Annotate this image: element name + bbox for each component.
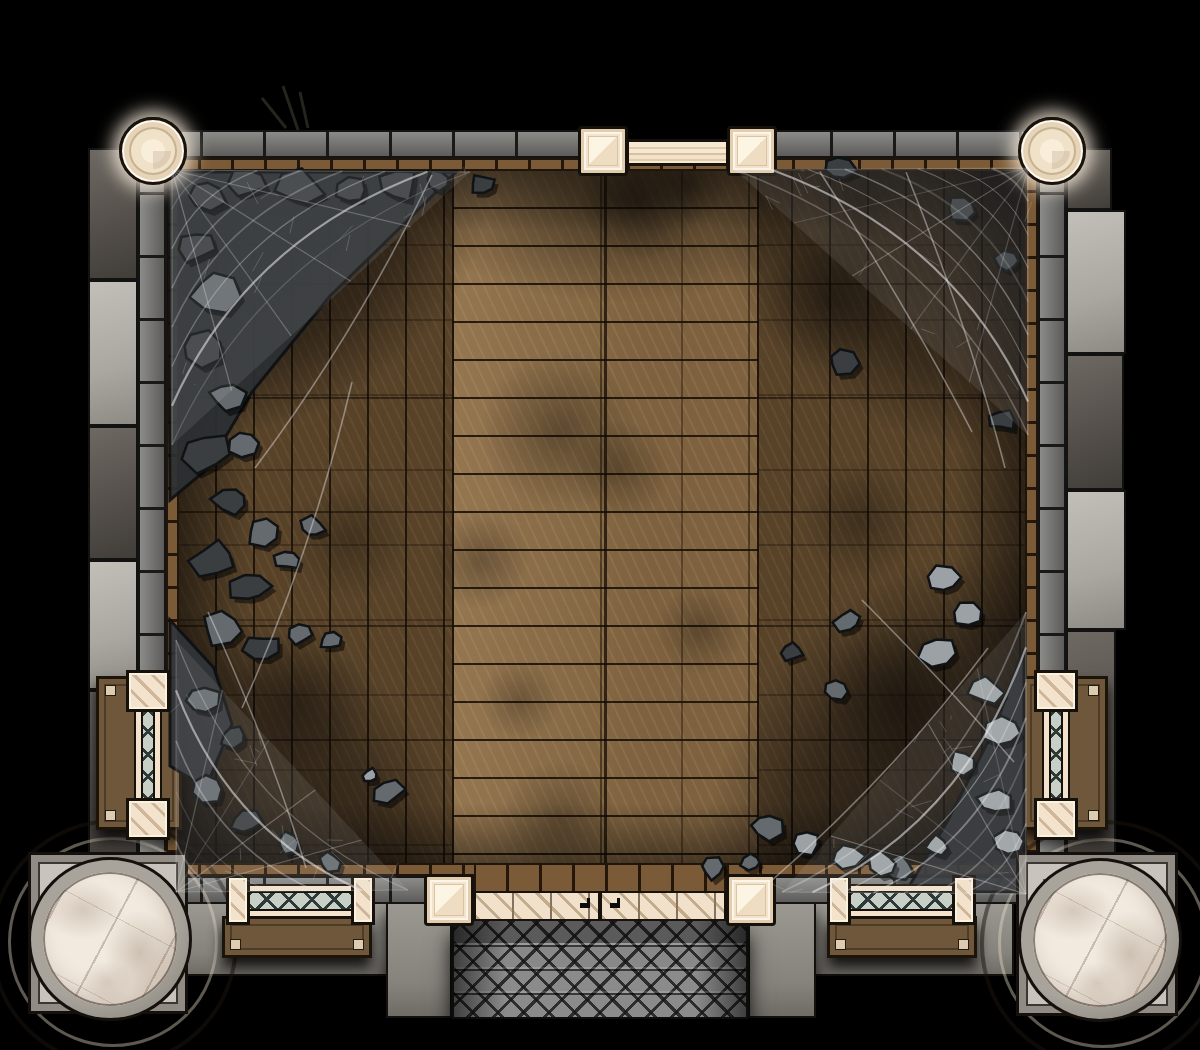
twig	[262, 98, 286, 128]
railing-left-wall	[134, 710, 162, 800]
twig	[283, 86, 298, 130]
railing-bottom-right	[849, 884, 954, 918]
door-handle	[580, 903, 590, 908]
floor-center-aisle	[452, 171, 759, 863]
marble-tower-bottom-right	[1033, 873, 1167, 1007]
bench-peg	[105, 685, 116, 696]
railing-post	[827, 875, 851, 925]
buttress-block	[88, 426, 138, 560]
railing-post	[1034, 670, 1078, 712]
railing-post	[126, 798, 170, 840]
bench-panel	[230, 924, 364, 950]
entrance-pillar-right	[726, 874, 776, 926]
bench-peg	[353, 939, 364, 950]
top-door-pillar-left	[578, 126, 628, 176]
bench-peg	[105, 810, 116, 821]
buttress-block	[1066, 354, 1124, 490]
railing-bottom-left	[248, 884, 353, 918]
round-tower-top-left	[119, 117, 187, 185]
floor-parquet-right	[755, 171, 1025, 863]
railing-post	[1034, 798, 1078, 840]
marble-tower-bottom-left	[43, 872, 177, 1006]
bottom-doorway-trim	[474, 863, 726, 893]
railing-post	[226, 875, 250, 925]
floor-parquet-left	[179, 171, 452, 863]
entrance-pillar-left	[424, 874, 474, 926]
entrance-stairs	[452, 919, 748, 1019]
buttress-block	[1066, 490, 1126, 630]
bench-peg	[230, 939, 241, 950]
aisle-seam	[604, 171, 607, 863]
twig	[300, 92, 308, 128]
railing-post	[351, 875, 375, 925]
buttress-block	[88, 280, 138, 426]
bench-peg	[835, 939, 846, 950]
railing-post	[126, 670, 170, 712]
battle-map-canvas	[0, 0, 1200, 1050]
wooden-floor	[179, 171, 1025, 863]
bench-peg	[958, 939, 969, 950]
entrance-door-left	[474, 891, 600, 921]
top-door-beam	[626, 139, 729, 166]
bench-peg	[1088, 685, 1099, 696]
round-tower-top-right	[1018, 117, 1086, 185]
buttress-block	[1066, 210, 1126, 354]
entrance-door-right	[600, 891, 726, 921]
door-handle	[610, 903, 620, 908]
railing-post	[952, 875, 976, 925]
bench-peg	[1088, 810, 1099, 821]
bench-panel	[835, 924, 969, 950]
railing-right-wall	[1042, 710, 1070, 800]
top-door-pillar-right	[727, 126, 777, 176]
